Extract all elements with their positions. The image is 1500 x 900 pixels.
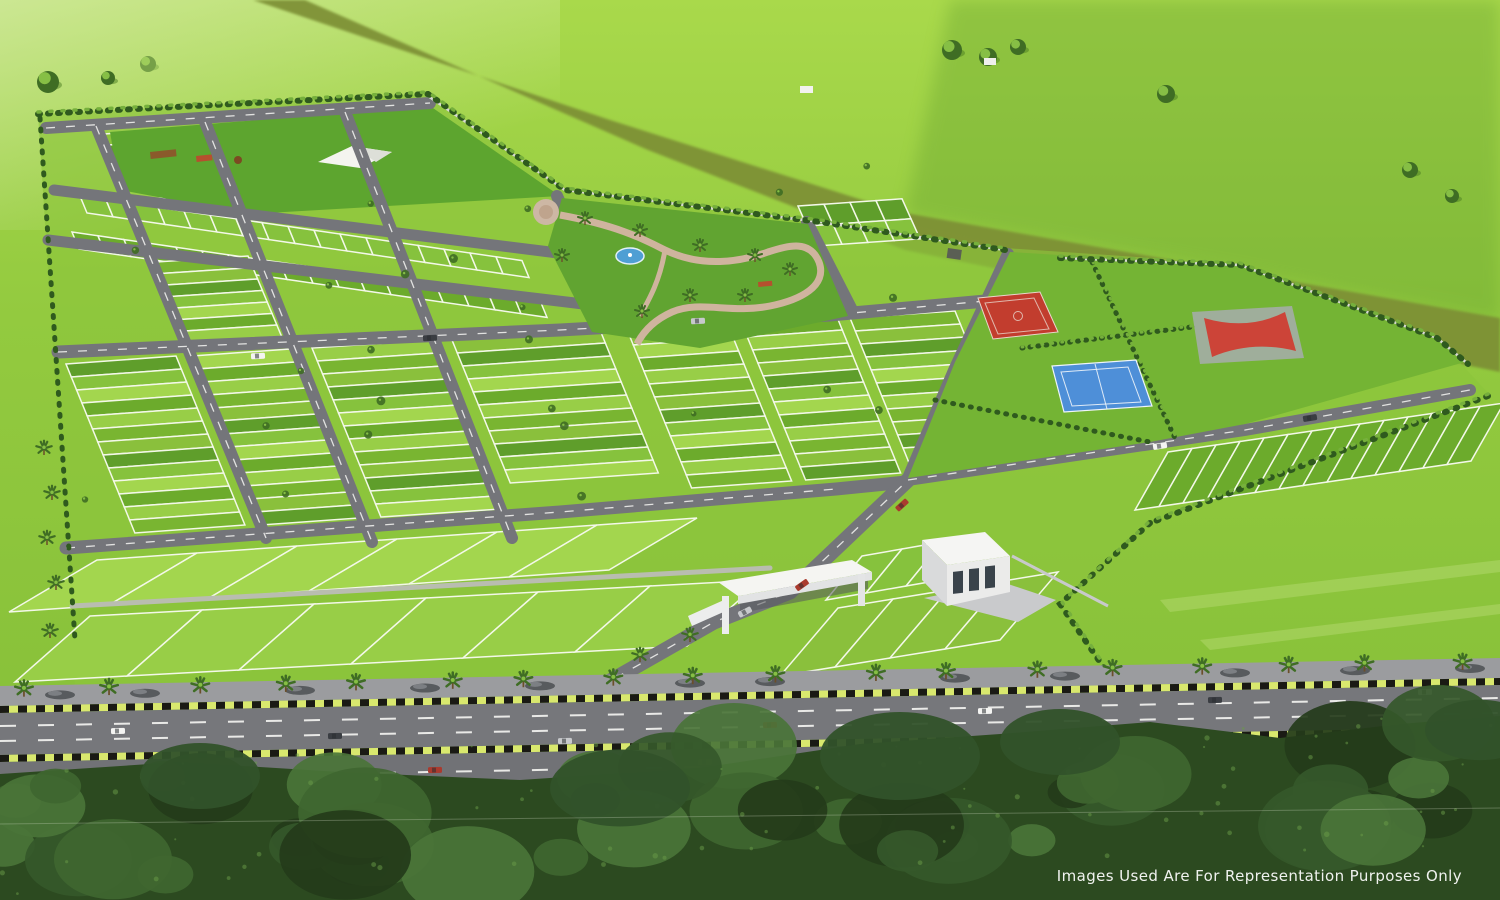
leaf-speckle [1303,849,1306,852]
bush-icon [560,421,569,430]
palm-crown [1200,664,1204,668]
utility-structure [947,248,962,260]
forest-blob [877,830,938,872]
leaf-speckle [815,786,819,790]
bush-icon [83,497,85,499]
leaf-speckle [1203,746,1205,748]
fountain [628,253,632,257]
bush-icon [368,201,374,207]
leaf-speckle [520,797,524,801]
bush-icon [520,305,522,307]
palm-crown [48,629,52,633]
leaf-speckle [377,865,382,870]
bush-icon [298,368,305,375]
palm-crown [284,681,288,685]
leaf-speckle [594,743,598,747]
bush-icon [264,424,266,426]
multipurpose-court [1192,306,1304,364]
leaf-speckle [1164,818,1169,823]
leaf-speckle [995,813,1000,818]
tree-crown [39,72,51,84]
leaf-speckle [1422,845,1424,847]
bush-icon [401,270,410,279]
palm-crown [1461,659,1465,663]
leaf-speckle [374,777,378,781]
leaf-speckle [1441,811,1445,815]
forest-blob [1321,794,1426,866]
leaf-speckle [720,768,722,770]
leaf-speckle [1356,724,1360,728]
render-viewport: Images Used Are For Representation Purpo… [0,0,1500,900]
leaf-speckle [1231,766,1235,770]
bush-icon [369,347,371,349]
car-icon [428,767,442,773]
leaf-speckle [608,846,612,850]
leaf-speckle [1105,853,1110,858]
leaf-speckle [296,753,300,757]
leaf-speckle [968,804,972,808]
leaf-speckle [512,861,517,866]
park-plaza-inner [539,205,553,219]
palm-crown [1035,667,1039,671]
bush-icon [550,406,552,408]
palm-crown [698,243,701,246]
palm-crown [944,669,948,673]
car-icon [328,733,342,739]
bush-icon [823,386,831,394]
palm-crown [691,673,695,677]
car-windshield [255,354,259,359]
leaf-speckle [1215,801,1220,806]
bush-icon [366,432,368,434]
leaf-speckle [1308,755,1312,759]
palm-crown [611,675,615,679]
tree-crown [141,57,150,66]
palm-crown [640,309,643,312]
leaf-speckle [1384,821,1389,826]
palm-crown [638,228,641,231]
leaf-speckle [1420,811,1423,814]
car-windshield [115,729,119,734]
palm-crown [743,293,746,296]
leaf-speckle [1461,763,1463,765]
clubhouse-window [985,565,995,588]
car-windshield [427,336,431,341]
leaf-speckle [530,789,533,792]
palm-crown [874,670,878,674]
bush-icon [379,399,381,401]
bush-icon [577,492,586,501]
bush-icon [451,256,453,258]
bush-icon [691,411,696,416]
leaf-speckle [1360,834,1363,837]
car-windshield [982,709,986,714]
car-windshield [1212,698,1216,703]
leaf-speckle [1324,832,1330,838]
forest-blob [279,810,411,900]
leaf-speckle [64,768,68,772]
tree-crown [944,41,955,52]
tennis-court [1052,360,1152,412]
palm-crown [688,633,692,637]
palm-crown [22,686,26,690]
leaf-speckle [1315,735,1318,738]
rock-cluster [48,691,62,696]
forest-blob [30,769,81,804]
palm-crown [54,581,58,585]
palm-crown [521,676,525,680]
leaf-speckle [1227,831,1232,836]
car-icon [691,318,705,325]
bush-icon [364,430,372,438]
leaf-speckle [700,846,705,851]
playground-equipment [234,156,242,164]
forest-blob [1388,757,1449,798]
bush-icon [133,248,135,250]
palm-crown [788,267,791,270]
bush-icon [367,346,375,354]
palm-crown [451,678,455,682]
palm-crown [1287,662,1291,666]
car-windshield [1307,415,1312,420]
bush-icon [299,369,301,371]
leaf-speckle [1222,784,1227,789]
clubhouse-window [953,571,963,594]
tree-crown [1403,163,1412,172]
bush-icon [526,207,528,209]
leaf-speckle [1088,813,1092,817]
leaf-speckle [113,789,118,794]
bush-icon [132,247,139,254]
farm-hut [984,58,996,65]
bush-icon [891,296,893,298]
gate-pillar [858,574,865,606]
bush-icon [865,164,867,166]
car-icon [251,353,265,360]
palm-crown [198,683,202,687]
bush-icon [325,282,332,289]
leaf-speckle [653,853,658,858]
bush-icon [282,490,289,497]
palm-crown [688,293,691,296]
palm-crown [753,253,756,256]
rock-cluster [1223,669,1237,674]
bush-icon [875,406,883,414]
bush-icon [877,408,879,410]
leaf-speckle [663,856,667,860]
leaf-speckle [1204,735,1209,740]
leaf-speckle [174,838,176,840]
bush-icon [403,272,405,274]
bush-icon [825,387,827,389]
bush-icon [449,254,458,263]
leaf-speckle [1345,742,1348,745]
car-icon [978,708,992,714]
palm-crown [354,680,358,684]
palm-crown [638,653,642,657]
leaf-speckle [0,870,5,875]
bush-icon [776,189,783,196]
clubhouse-window [969,568,979,591]
leaf-speckle [65,860,68,863]
bush-icon [82,496,88,502]
vehicle-on-dirt-road [800,86,813,93]
leaf-speckle [1015,794,1020,799]
leaf-speckle [1297,825,1302,830]
leaf-speckle [242,865,246,869]
car-windshield [432,768,436,773]
aerial-site-render: Images Used Are For Representation Purpo… [0,0,1500,900]
rock-cluster [413,684,427,689]
tree-crown [102,72,110,80]
bush-icon [777,190,779,192]
palm-crown [583,216,586,219]
leaf-speckle [371,862,376,867]
tree-crown [1011,40,1020,49]
leaf-speckle [1242,727,1245,730]
leaf-speckle [16,892,19,895]
car-icon [1208,697,1222,703]
rock-cluster [1343,667,1357,672]
bush-icon [562,424,564,426]
leaf-speckle [951,825,955,829]
forest-blob [1000,709,1120,775]
leaf-speckle [750,847,754,851]
leaf-speckle [471,745,473,747]
forest-blob [550,750,690,827]
car-icon [111,728,125,734]
bush-icon [369,202,371,204]
car-icon [423,335,437,342]
disclaimer-text: Images Used Are For Representation Purpo… [1057,867,1462,885]
forest-blob [820,712,980,800]
leaf-speckle [918,860,923,865]
palm-crown [773,672,777,676]
palm-crown [42,446,46,450]
bush-icon [327,283,329,285]
bush-icon [283,492,285,494]
car-windshield [695,319,699,324]
forest-blob [1008,824,1055,856]
car-icon [558,738,572,744]
leaf-speckle [601,862,606,867]
palm-crown [50,491,54,495]
palm-crown [560,253,563,256]
leaf-speckle [154,876,159,881]
rock-cluster [133,689,147,694]
bush-icon [520,304,526,310]
car-windshield [1157,443,1162,448]
forest-blob [140,743,260,809]
forest-blob [54,819,172,899]
leaf-speckle [963,788,965,790]
bush-icon [548,405,556,413]
leaf-speckle [1380,717,1382,719]
tree-crown [1446,190,1454,198]
tree-crown [980,49,990,59]
tree-crown [1158,86,1168,96]
forest-blob [534,839,589,876]
leaf-speckle [308,780,313,785]
bush-icon [527,337,529,339]
rock-cluster [1053,672,1067,677]
leaf-speckle [475,806,478,809]
bush-icon [579,494,581,496]
bush-icon [376,396,385,405]
bush-icon [262,422,269,429]
leaf-speckle [764,830,767,833]
palm-crown [107,684,111,688]
bush-icon [692,412,694,414]
bush-icon [524,205,531,212]
leaf-speckle [227,876,231,880]
palm-crown [1111,665,1115,669]
car-windshield [332,734,336,739]
car-windshield [562,739,566,744]
palm-crown [1362,661,1366,665]
palm-crown [45,536,49,540]
leaf-speckle [943,840,946,843]
leaf-speckle [257,852,262,857]
forest-blob [738,780,828,841]
bush-icon [525,335,533,343]
leaf-speckle [1431,789,1435,793]
leaf-speckle [1199,811,1203,815]
bush-icon [863,163,870,170]
bush-icon [889,294,897,302]
